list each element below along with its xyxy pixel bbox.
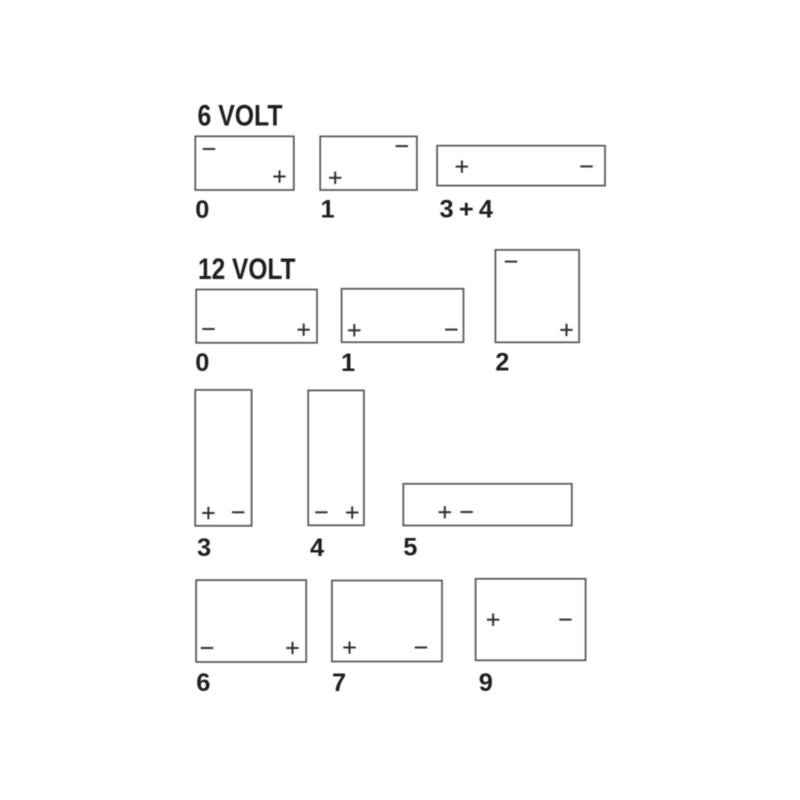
svg-text:4: 4 bbox=[310, 534, 324, 562]
svg-text:0: 0 bbox=[195, 349, 209, 377]
svg-text:0: 0 bbox=[195, 196, 209, 224]
svg-text:1: 1 bbox=[341, 349, 355, 377]
svg-text:5: 5 bbox=[403, 534, 417, 562]
svg-text:1: 1 bbox=[321, 196, 335, 224]
svg-text:9: 9 bbox=[479, 669, 493, 697]
svg-text:3 + 4: 3 + 4 bbox=[440, 196, 494, 224]
svg-text:2: 2 bbox=[495, 349, 509, 377]
svg-text:3: 3 bbox=[197, 534, 211, 562]
svg-text:6: 6 bbox=[196, 669, 210, 697]
svg-text:12 VOLT: 12 VOLT bbox=[198, 253, 296, 286]
svg-text:7: 7 bbox=[332, 669, 346, 697]
svg-text:6 VOLT: 6 VOLT bbox=[198, 100, 283, 133]
